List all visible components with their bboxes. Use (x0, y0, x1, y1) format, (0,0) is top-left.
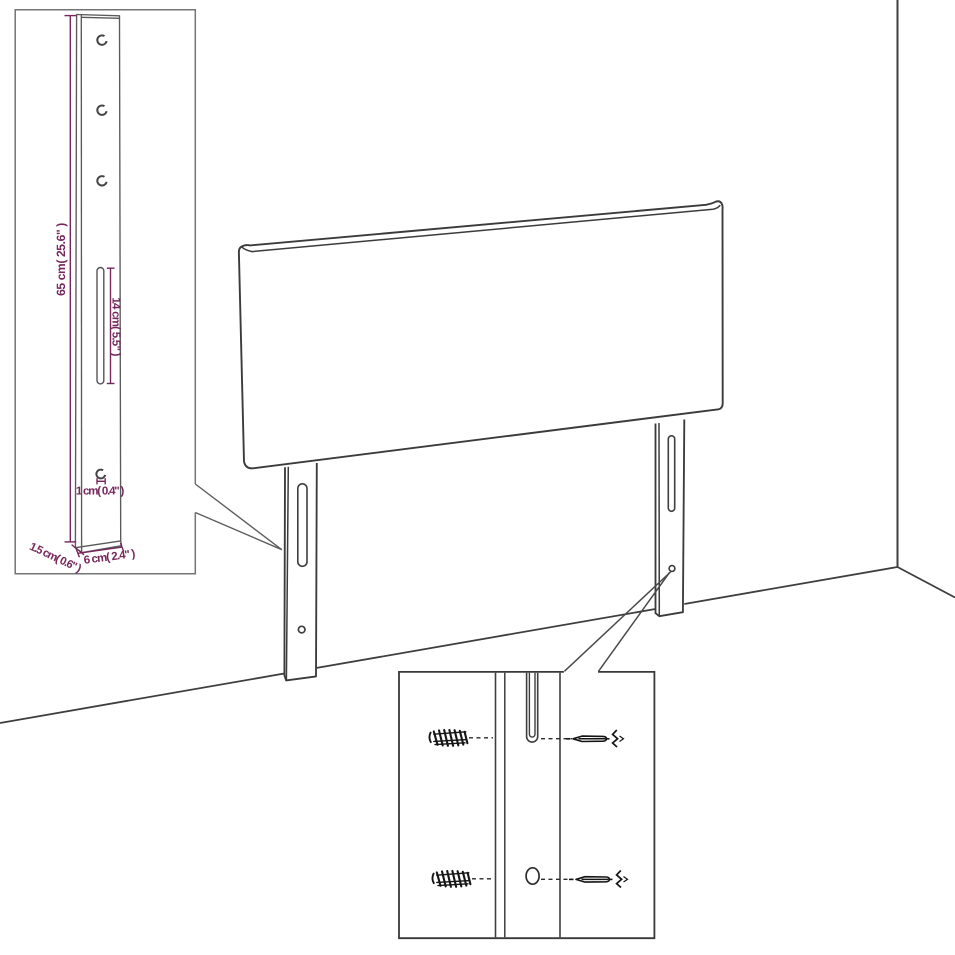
svg-text:1 cm( 0.4" ): 1 cm( 0.4" ) (76, 486, 125, 498)
svg-text:14 cm( 5.5" ): 14 cm( 5.5" ) (110, 297, 122, 356)
svg-text:65 cm( 25.6" ): 65 cm( 25.6" ) (54, 223, 68, 296)
